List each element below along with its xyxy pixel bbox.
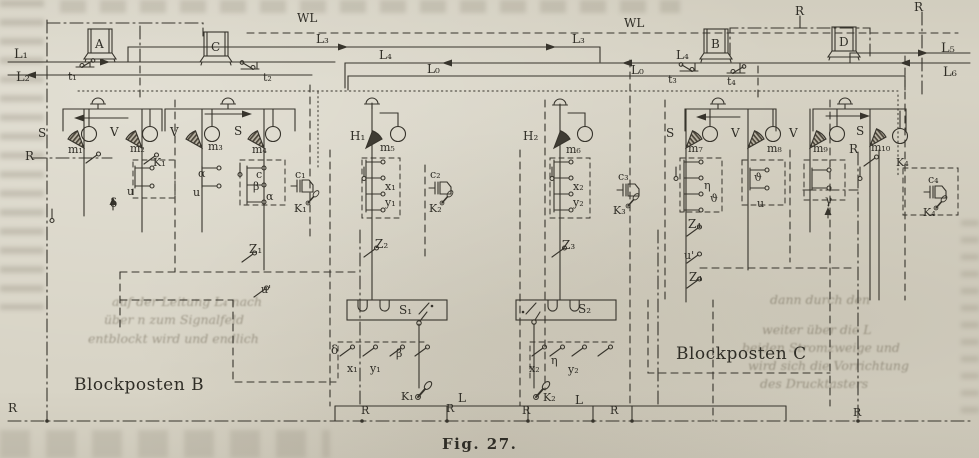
diagram-label: L₄ bbox=[676, 48, 689, 62]
diagram-label: L₀ bbox=[631, 63, 644, 77]
diagram-label: R bbox=[853, 406, 862, 419]
block-signal-circuit-diagram: L₁L₂WLWLRRL₃L₃L₄L₄L₀L₀L₅L₆ACBDt₁t₂t₃t₄Sm… bbox=[0, 0, 979, 458]
diagram-label: c₂ bbox=[430, 168, 441, 181]
diagram-label: t₁ bbox=[68, 70, 77, 83]
station-left-label: Blockposten B bbox=[74, 375, 204, 395]
diagram-label: L₆ bbox=[943, 65, 957, 80]
heel-contact bbox=[674, 167, 678, 181]
signal-flag-v-m8 bbox=[748, 131, 764, 148]
diagram-label: R bbox=[610, 404, 619, 417]
bell-icon bbox=[711, 98, 726, 109]
block-key-k1 bbox=[416, 380, 434, 399]
relay-m4 bbox=[266, 127, 281, 142]
diagram-label: Z₄ bbox=[688, 217, 701, 231]
contact-x1 bbox=[363, 345, 378, 356]
diagram-label: m₁ bbox=[68, 143, 83, 156]
diagram-label: L₀ bbox=[427, 62, 440, 76]
diagram-label: m₇ bbox=[688, 142, 703, 155]
diagram-label: ϑ bbox=[754, 171, 762, 184]
diagram-label: WL bbox=[624, 16, 644, 30]
contact-stack-m9 bbox=[812, 168, 831, 190]
contact-stack-m2 bbox=[135, 166, 154, 188]
diagram-label: u' bbox=[684, 249, 694, 262]
diagram-label: K₃ bbox=[613, 204, 626, 217]
diagram-label: C bbox=[211, 40, 220, 54]
inductor-box-s2 bbox=[516, 300, 616, 324]
relay-m10 bbox=[893, 129, 908, 144]
diagram-label: K₂ bbox=[429, 202, 442, 215]
condenser-c4 bbox=[924, 186, 946, 198]
diagram-label: L bbox=[458, 391, 466, 405]
diagram-label: S bbox=[234, 124, 242, 138]
diagram-label: u bbox=[193, 186, 200, 199]
diagram-label: u' bbox=[261, 283, 271, 296]
diagram-label: m₅ bbox=[380, 141, 395, 154]
diagram-label: x₂ bbox=[573, 180, 584, 193]
diagram-label: V bbox=[788, 126, 798, 140]
bell-icon bbox=[553, 99, 568, 110]
diagram-label: R bbox=[8, 401, 18, 415]
diagram-label: η bbox=[551, 354, 558, 367]
scanned-book-figure-page: auf der Leitung L₄ nachüber n zum Signal… bbox=[0, 0, 979, 458]
diagram-label: R bbox=[522, 404, 531, 417]
diagram-label: m₉ bbox=[813, 142, 828, 155]
wire-L0 bbox=[348, 76, 905, 90]
diagram-label: R bbox=[361, 404, 370, 417]
bell-icon bbox=[221, 98, 236, 109]
diagram-label: S₁ bbox=[399, 303, 412, 317]
diagram-label: K₁ bbox=[401, 390, 414, 403]
contact-lever-k4 bbox=[864, 155, 879, 166]
diagram-label: L₄ bbox=[379, 48, 392, 62]
diagram-label: δ bbox=[110, 196, 117, 210]
diagram-label: V bbox=[109, 125, 119, 139]
diagram-label: B bbox=[711, 37, 720, 51]
diagram-label: Z₄ bbox=[689, 270, 702, 284]
heel-contact bbox=[550, 167, 554, 181]
diagram-label: α bbox=[198, 167, 206, 180]
wire-L3 bbox=[128, 47, 600, 62]
condenser-c2 bbox=[429, 182, 451, 194]
diagram-label: S bbox=[666, 126, 674, 140]
diagram-label: m₆ bbox=[566, 143, 581, 156]
bell-icon bbox=[365, 98, 380, 109]
diagram-label: A bbox=[94, 37, 104, 51]
heel-contact bbox=[362, 167, 366, 181]
diagram-label: R bbox=[849, 142, 859, 156]
diagram-label: x₁ bbox=[385, 180, 396, 193]
diagram-label: u bbox=[127, 185, 134, 198]
diagram-label: α bbox=[266, 190, 274, 203]
diagram-label: WL bbox=[297, 11, 317, 25]
diagram-label: x₁ bbox=[347, 362, 358, 375]
relay-m6 bbox=[578, 127, 593, 142]
station-right-label: Blockposten C bbox=[676, 344, 807, 364]
contact-stack-m7 bbox=[684, 160, 703, 212]
contact-delta bbox=[340, 345, 355, 356]
diagram-label: K₄ bbox=[923, 206, 936, 219]
diagram-label: ϑ bbox=[710, 192, 718, 205]
diagram-label: D bbox=[839, 35, 849, 49]
diagram-label: V bbox=[730, 126, 740, 140]
diagram-label: Z₁ bbox=[249, 242, 262, 256]
contact-y2 bbox=[572, 345, 587, 356]
diagram-label: L₃ bbox=[316, 32, 329, 46]
bell-icon bbox=[91, 98, 106, 109]
diagram-label: L₅ bbox=[941, 41, 955, 56]
diagram-label: y₂ bbox=[567, 363, 579, 376]
bell-icon bbox=[838, 98, 853, 109]
contact-right bbox=[598, 345, 613, 356]
diagram-label: L₁ bbox=[14, 47, 28, 62]
diagram-label: H₁ bbox=[350, 129, 365, 143]
diagram-label: t₃ bbox=[668, 73, 677, 86]
diagram-label: H₂ bbox=[523, 129, 538, 143]
contact-stack-h2 bbox=[554, 160, 573, 212]
diagram-label: Z₃ bbox=[562, 238, 575, 252]
diagram-label: S₂ bbox=[578, 302, 591, 316]
diagram-label: K₁ bbox=[294, 202, 307, 215]
diagram-label: L₃ bbox=[572, 32, 585, 46]
relay-m8 bbox=[766, 127, 781, 142]
heel-contact bbox=[858, 167, 862, 181]
diagram-label: δ bbox=[331, 343, 338, 357]
heel-contact bbox=[50, 209, 54, 223]
diagram-label: u bbox=[757, 197, 764, 210]
diagram-label: L bbox=[575, 393, 583, 407]
relay-m2 bbox=[143, 127, 158, 142]
diagram-label: Z₂ bbox=[375, 237, 388, 251]
diagram-label: R bbox=[25, 149, 35, 163]
figure-caption: Fig. 27. bbox=[442, 435, 517, 453]
relay-m5 bbox=[391, 127, 406, 142]
diagram-label: γ bbox=[825, 193, 832, 207]
diagram-label: c₁ bbox=[295, 168, 306, 181]
diagram-label: S bbox=[38, 126, 46, 140]
diagram-label: R bbox=[446, 402, 455, 415]
bracket-left-2 bbox=[165, 109, 295, 131]
wire-layer bbox=[8, 12, 970, 421]
diagram-label: V bbox=[169, 125, 179, 139]
inductor-box-s1 bbox=[347, 300, 447, 325]
diagram-label: K₁ bbox=[153, 156, 166, 169]
diagram-label: c₄ bbox=[928, 173, 939, 186]
diagram-label: β bbox=[396, 347, 402, 360]
relay-m9 bbox=[830, 127, 845, 142]
diagram-label: m₈ bbox=[767, 142, 782, 155]
diagram-label: β bbox=[253, 180, 259, 193]
diagram-label: R bbox=[795, 4, 805, 18]
tapper-contact-t4 bbox=[727, 65, 746, 74]
diagram-label: y₂ bbox=[572, 196, 584, 209]
diagram-label: K₄ bbox=[896, 156, 909, 169]
key-k2 bbox=[440, 190, 454, 205]
diagram-label: m₄ bbox=[252, 143, 267, 156]
diagram-label: m₂ bbox=[130, 142, 145, 155]
relay-m7 bbox=[703, 127, 718, 142]
diagram-label: t₂ bbox=[263, 71, 272, 84]
diagram-label: R bbox=[914, 0, 924, 14]
diagram-label: η bbox=[704, 179, 711, 192]
diagram-label: S bbox=[856, 124, 864, 138]
diagram-label: c₃ bbox=[618, 170, 629, 183]
diagram-label: t₄ bbox=[727, 75, 736, 88]
contact-beta bbox=[415, 345, 430, 356]
signal-flag-v-m3 bbox=[186, 131, 202, 148]
diagram-label: y₁ bbox=[384, 196, 396, 209]
contact-stack-h1 bbox=[366, 160, 385, 212]
diagram-label: y₁ bbox=[369, 362, 381, 375]
diagram-label: x₂ bbox=[529, 362, 540, 375]
diagram-label: K₂ bbox=[543, 391, 556, 404]
diagram-label: L₂ bbox=[16, 70, 30, 85]
diagram-label: m₁₀ bbox=[871, 141, 891, 154]
diagram-label: m₃ bbox=[208, 140, 223, 153]
